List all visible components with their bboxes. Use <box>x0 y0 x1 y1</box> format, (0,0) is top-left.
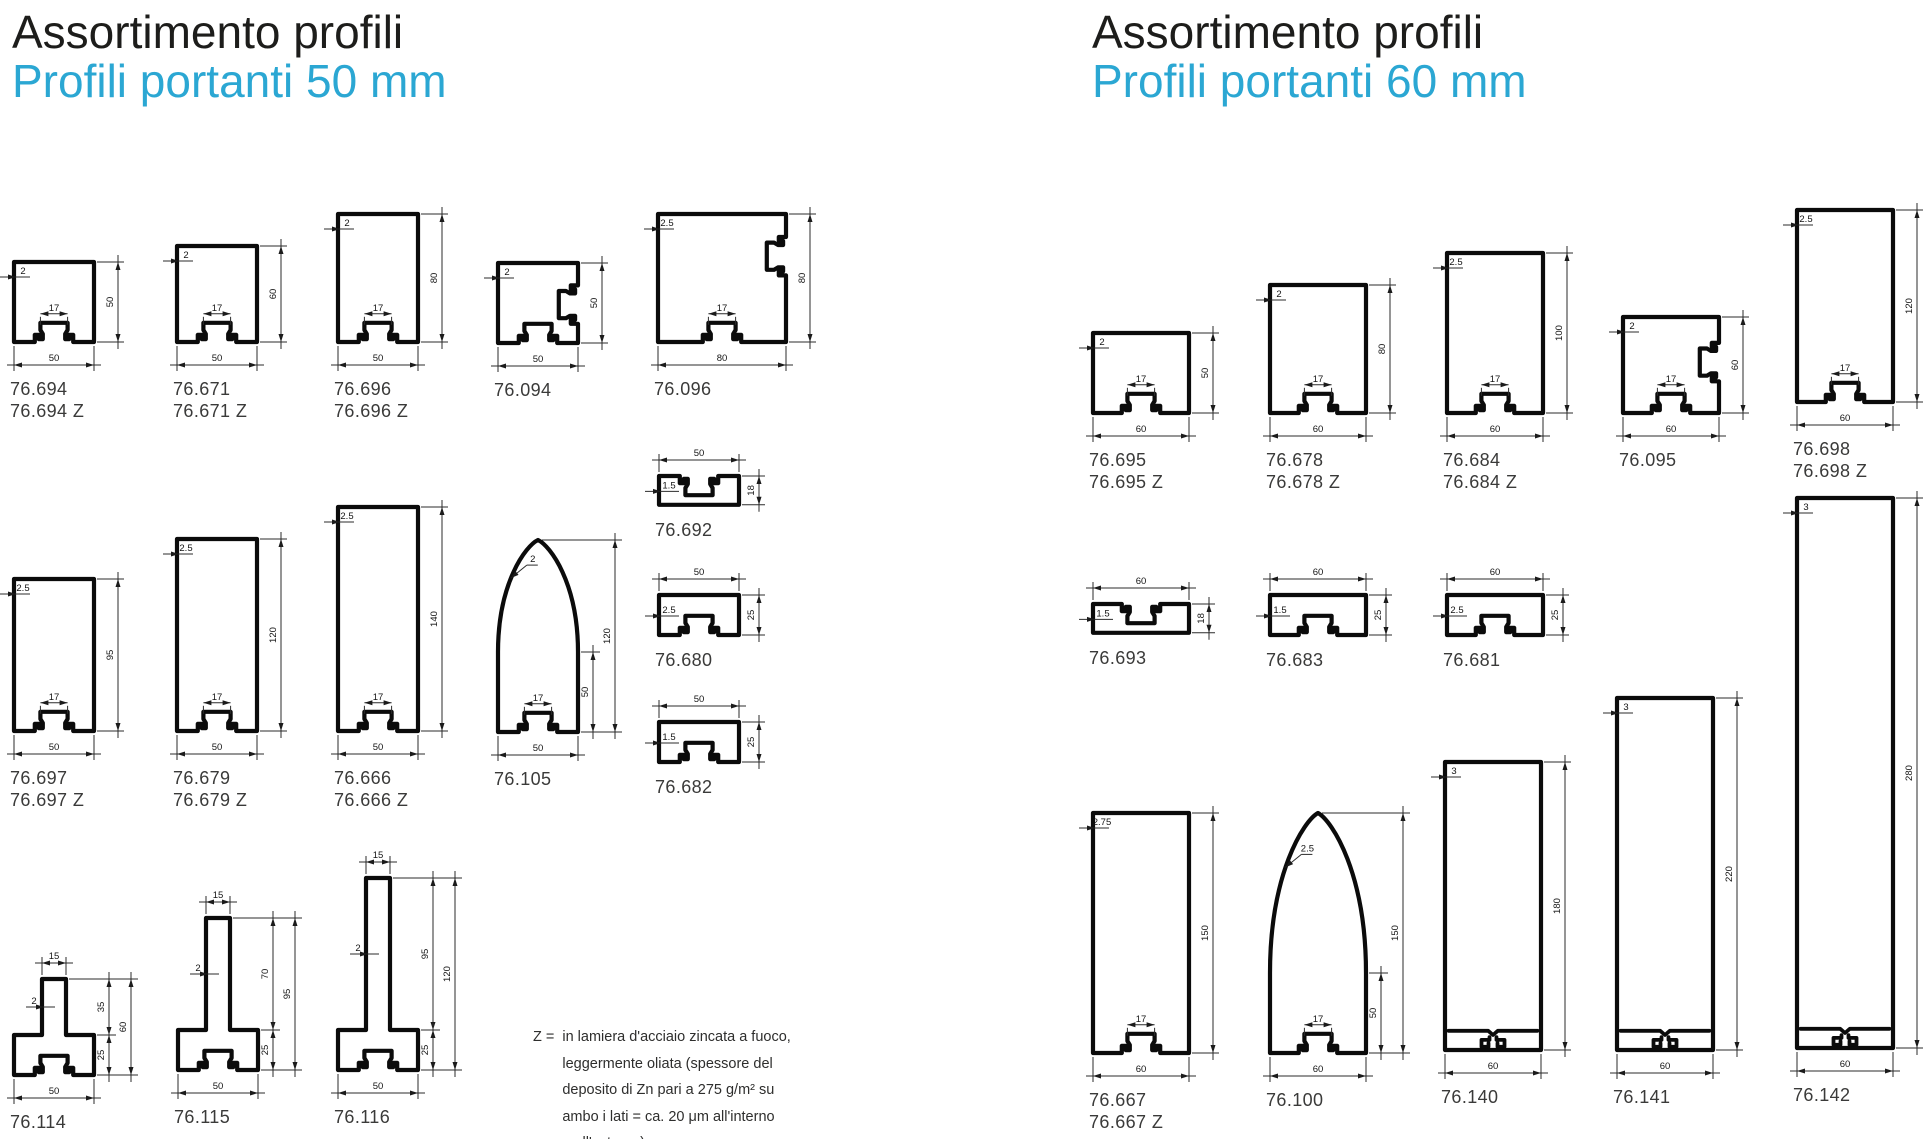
profile-number: 76.696 <box>334 378 408 400</box>
svg-text:25: 25 <box>746 737 757 748</box>
svg-text:2.75: 2.75 <box>1093 817 1112 828</box>
svg-text:150: 150 <box>1390 925 1401 941</box>
profile-drawing: 6017602 <box>1603 305 1757 451</box>
profile-number: 76.666 Z <box>334 789 408 811</box>
svg-text:50: 50 <box>694 694 705 705</box>
profile-number: 76.142 <box>1793 1084 1850 1106</box>
svg-text:50: 50 <box>373 742 384 753</box>
footnote-line: deposito di Zn pari a 275 g/m² su <box>562 1077 790 1104</box>
profile-76.679: 50171202.576.67976.679 Z <box>157 527 295 819</box>
profile-drawing: 6017802 <box>1250 273 1404 451</box>
profile-number-label: 76.69476.694 Z <box>10 378 84 422</box>
profile-number: 76.692 <box>655 519 712 541</box>
profile-number-label: 76.100 <box>1266 1089 1323 1111</box>
profile-drawing: 8017802.5 <box>638 202 824 380</box>
svg-text:17: 17 <box>373 303 384 314</box>
profile-number: 76.096 <box>654 378 711 400</box>
right-section-title: Assortimento profili <box>1092 8 1527 57</box>
profile-76.697: 5017952.576.69776.697 Z <box>0 567 132 819</box>
svg-text:50: 50 <box>49 742 60 753</box>
svg-text:60: 60 <box>1840 413 1851 424</box>
svg-text:2: 2 <box>355 943 360 954</box>
profile-drawing: 5017602 <box>157 234 295 380</box>
profile-drawing: 50153525602 <box>0 945 152 1113</box>
profile-drawing: 50157025952 <box>158 884 316 1108</box>
svg-text:80: 80 <box>717 353 728 364</box>
profile-number: 76.671 Z <box>173 400 247 422</box>
page-canvas: Assortimento profili Profili portanti 50… <box>0 0 1930 1139</box>
svg-text:50: 50 <box>533 354 544 365</box>
profile-76.105: 501750120276.105 <box>478 528 636 820</box>
profile-76.116: 50159525120276.116 <box>318 844 476 1139</box>
svg-text:60: 60 <box>1488 1061 1499 1072</box>
profile-76.692: 50181.576.692 <box>639 442 777 567</box>
profile-number-label: 76.094 <box>494 379 551 401</box>
profile-76.680: 50252.576.680 <box>639 561 777 697</box>
svg-text:180: 180 <box>1552 898 1563 914</box>
profile-number-label: 76.69876.698 Z <box>1793 438 1867 482</box>
left-section-title: Assortimento profili <box>12 8 447 57</box>
svg-text:60: 60 <box>1490 424 1501 435</box>
svg-text:50: 50 <box>589 298 600 309</box>
svg-text:2.5: 2.5 <box>1449 257 1462 268</box>
right-section-subtitle: Profili portanti 60 mm <box>1092 57 1527 106</box>
profile-76.115: 5015702595276.115 <box>158 884 316 1139</box>
svg-text:15: 15 <box>49 951 60 962</box>
svg-text:1.5: 1.5 <box>662 481 675 492</box>
profile-number-label: 76.693 <box>1089 647 1146 669</box>
profile-number-label: 76.681 <box>1443 649 1500 671</box>
profile-drawing: 6017502 <box>1073 321 1227 451</box>
profile-drawing: 60171002.5 <box>1427 241 1581 451</box>
svg-text:15: 15 <box>373 850 384 861</box>
svg-text:17: 17 <box>717 303 728 314</box>
svg-text:60: 60 <box>1313 1064 1324 1075</box>
svg-text:50: 50 <box>1368 1008 1379 1019</box>
profile-76.667: 60171502.7576.66776.667 Z <box>1073 801 1227 1139</box>
svg-text:60: 60 <box>1840 1059 1851 1070</box>
svg-text:25: 25 <box>1550 610 1561 621</box>
svg-text:60: 60 <box>1490 567 1501 578</box>
svg-text:60: 60 <box>1136 1064 1147 1075</box>
svg-text:50: 50 <box>373 353 384 364</box>
svg-text:280: 280 <box>1904 765 1915 781</box>
svg-text:220: 220 <box>1724 866 1735 882</box>
svg-text:60: 60 <box>1666 424 1677 435</box>
svg-text:70: 70 <box>260 969 271 980</box>
svg-text:50: 50 <box>105 297 116 308</box>
profile-76.141: 60220376.141 <box>1597 686 1751 1138</box>
profile-number: 76.684 <box>1443 449 1517 471</box>
profile-76.696: 501780276.69676.696 Z <box>318 202 456 430</box>
svg-text:60: 60 <box>118 1022 129 1033</box>
profile-number: 76.140 <box>1441 1086 1498 1108</box>
profile-76.094: 5050276.094 <box>478 251 616 431</box>
svg-text:50: 50 <box>694 567 705 578</box>
svg-text:17: 17 <box>212 692 223 703</box>
profile-number: 76.679 <box>173 767 247 789</box>
profile-number: 76.141 <box>1613 1086 1670 1108</box>
profile-drawing: 50252.5 <box>639 561 777 647</box>
svg-text:140: 140 <box>429 611 440 627</box>
svg-text:120: 120 <box>442 966 453 982</box>
right-section-header: Assortimento profili Profili portanti 60… <box>1092 8 1527 106</box>
profile-number-label: 76.141 <box>1613 1086 1670 1108</box>
profile-number: 76.095 <box>1619 449 1676 471</box>
profile-number: 76.697 Z <box>10 789 84 811</box>
svg-text:2.5: 2.5 <box>1301 843 1314 854</box>
svg-text:2: 2 <box>195 963 200 974</box>
profile-drawing: 60171202.5 <box>1777 198 1930 440</box>
profile-76.683: 60251.576.683 <box>1250 561 1404 697</box>
svg-text:18: 18 <box>1196 613 1207 624</box>
svg-text:50: 50 <box>213 1081 224 1092</box>
svg-text:2.5: 2.5 <box>1799 214 1812 225</box>
profile-drawing: 60171502.75 <box>1073 801 1227 1091</box>
svg-text:50: 50 <box>49 1086 60 1097</box>
profile-number: 76.696 Z <box>334 400 408 422</box>
profile-drawing: 50502 <box>478 251 616 381</box>
svg-text:2.5: 2.5 <box>660 218 673 229</box>
svg-text:50: 50 <box>373 1081 384 1092</box>
profile-drawing: 60181.5 <box>1073 570 1227 645</box>
svg-text:60: 60 <box>1313 424 1324 435</box>
profile-76.684: 60171002.576.68476.684 Z <box>1427 241 1581 501</box>
profile-number: 76.684 Z <box>1443 471 1517 493</box>
profile-number-label: 76.680 <box>655 649 712 671</box>
svg-text:2.5: 2.5 <box>340 511 353 522</box>
profile-76.681: 60252.576.681 <box>1427 561 1581 697</box>
svg-text:60: 60 <box>1730 360 1741 371</box>
left-section-subtitle: Profili portanti 50 mm <box>12 57 447 106</box>
profile-drawing: 6017501502.5 <box>1250 801 1424 1091</box>
footnote-line: leggermente oliata (spessore del <box>562 1051 790 1078</box>
svg-text:17: 17 <box>212 303 223 314</box>
svg-text:80: 80 <box>797 273 808 284</box>
profile-76.096: 8017802.576.096 <box>638 202 824 430</box>
profile-number-label: 76.114 <box>10 1111 66 1133</box>
profile-number-label: 76.682 <box>655 776 712 798</box>
svg-text:60: 60 <box>1313 567 1324 578</box>
profile-76.693: 60181.576.693 <box>1073 570 1227 695</box>
profile-drawing: 601803 <box>1425 750 1579 1088</box>
svg-text:25: 25 <box>746 610 757 621</box>
profile-number-label: 76.69676.696 Z <box>334 378 408 422</box>
profile-drawing: 5017952.5 <box>0 567 132 769</box>
svg-text:17: 17 <box>1840 363 1851 374</box>
profile-number-label: 76.66776.667 Z <box>1089 1089 1163 1133</box>
profile-76.678: 601780276.67876.678 Z <box>1250 273 1404 501</box>
svg-text:95: 95 <box>282 989 293 1000</box>
profile-number-label: 76.69776.697 Z <box>10 767 84 811</box>
profile-number: 76.683 <box>1266 649 1323 671</box>
profile-drawing: 602203 <box>1597 686 1751 1088</box>
svg-text:50: 50 <box>580 687 591 698</box>
profile-number-label: 76.683 <box>1266 649 1323 671</box>
profile-number-label: 76.692 <box>655 519 712 541</box>
svg-text:2: 2 <box>1276 289 1281 300</box>
profile-number: 76.114 <box>10 1111 66 1133</box>
footnote: Z = in lamiera d'acciaio zincata a fuoco… <box>533 1024 791 1139</box>
svg-text:17: 17 <box>1313 1014 1324 1025</box>
profile-number: 76.693 <box>1089 647 1146 669</box>
svg-text:95: 95 <box>420 949 431 960</box>
profile-drawing: 60251.5 <box>1250 561 1404 647</box>
svg-text:18: 18 <box>746 485 757 496</box>
svg-text:50: 50 <box>533 743 544 754</box>
footnote-text: in lamiera d'acciaio zincata a fuoco, le… <box>562 1024 790 1139</box>
profile-number: 76.667 Z <box>1089 1111 1163 1133</box>
svg-text:3: 3 <box>1803 502 1808 513</box>
svg-text:50: 50 <box>212 742 223 753</box>
svg-text:3: 3 <box>1451 766 1456 777</box>
svg-text:25: 25 <box>1373 610 1384 621</box>
svg-text:17: 17 <box>1136 1014 1147 1025</box>
profile-number-label: 76.105 <box>494 768 551 790</box>
svg-text:2: 2 <box>344 218 349 229</box>
profile-number: 76.105 <box>494 768 551 790</box>
svg-text:17: 17 <box>1490 374 1501 385</box>
svg-text:17: 17 <box>1313 374 1324 385</box>
svg-text:120: 120 <box>602 628 613 644</box>
profile-76.666: 50171402.576.66676.666 Z <box>318 495 456 819</box>
svg-text:1.5: 1.5 <box>662 732 675 743</box>
svg-text:60: 60 <box>1660 1061 1671 1072</box>
profile-number-label: 76.68476.684 Z <box>1443 449 1517 493</box>
profile-number-label: 76.096 <box>654 378 711 400</box>
svg-text:50: 50 <box>1200 368 1211 379</box>
svg-text:100: 100 <box>1554 325 1565 341</box>
svg-text:1.5: 1.5 <box>1273 605 1286 616</box>
profile-76.698: 60171202.576.69876.698 Z <box>1777 198 1930 490</box>
profile-drawing: 5017802 <box>318 202 456 380</box>
svg-text:80: 80 <box>1377 344 1388 355</box>
svg-text:120: 120 <box>1904 298 1915 314</box>
svg-text:150: 150 <box>1200 925 1211 941</box>
profile-number: 76.698 <box>1793 438 1867 460</box>
profile-number-label: 76.116 <box>334 1106 390 1128</box>
svg-text:2.5: 2.5 <box>1450 605 1463 616</box>
profile-number: 76.698 Z <box>1793 460 1867 482</box>
profile-76.142: 60280376.142 <box>1777 486 1930 1136</box>
profile-drawing: 50171202.5 <box>157 527 295 769</box>
profile-number: 76.697 <box>10 767 84 789</box>
svg-text:17: 17 <box>533 693 544 704</box>
svg-text:15: 15 <box>213 890 224 901</box>
svg-text:2.5: 2.5 <box>662 605 675 616</box>
profile-drawing: 5017501202 <box>478 528 636 770</box>
svg-text:80: 80 <box>429 273 440 284</box>
profile-number: 76.100 <box>1266 1089 1323 1111</box>
svg-text:17: 17 <box>1666 374 1677 385</box>
svg-text:2.5: 2.5 <box>179 543 192 554</box>
svg-text:2: 2 <box>183 250 188 261</box>
profile-76.671: 501760276.67176.671 Z <box>157 234 295 430</box>
svg-text:50: 50 <box>212 353 223 364</box>
profile-drawing: 501595251202 <box>318 844 476 1108</box>
profile-drawing: 50171402.5 <box>318 495 456 769</box>
svg-text:2: 2 <box>530 554 535 565</box>
profile-number: 76.671 <box>173 378 247 400</box>
profile-number: 76.681 <box>1443 649 1500 671</box>
svg-text:3: 3 <box>1623 702 1628 713</box>
svg-text:2: 2 <box>504 267 509 278</box>
left-section-header: Assortimento profili Profili portanti 50… <box>12 8 447 106</box>
svg-text:50: 50 <box>694 448 705 459</box>
svg-text:1.5: 1.5 <box>1096 609 1109 620</box>
profile-76.114: 5015352560276.114 <box>0 945 152 1139</box>
svg-text:95: 95 <box>105 650 116 661</box>
profile-number-label: 76.67976.679 Z <box>173 767 247 811</box>
profile-number: 76.667 <box>1089 1089 1163 1111</box>
profile-number: 76.695 Z <box>1089 471 1163 493</box>
svg-text:2.5: 2.5 <box>16 583 29 594</box>
profile-number-label: 76.142 <box>1793 1084 1850 1106</box>
svg-text:17: 17 <box>49 303 60 314</box>
svg-text:25: 25 <box>420 1045 431 1056</box>
footnote-line: in lamiera d'acciaio zincata a fuoco, <box>562 1024 790 1051</box>
svg-text:2: 2 <box>20 266 25 277</box>
profile-76.095: 601760276.095 <box>1603 305 1757 501</box>
footnote-line: ambo i lati = ca. 20 μm all'interno <box>562 1104 790 1131</box>
profile-number: 76.694 Z <box>10 400 84 422</box>
profile-76.140: 60180376.140 <box>1425 750 1579 1138</box>
svg-text:17: 17 <box>1136 374 1147 385</box>
profile-number: 76.695 <box>1089 449 1163 471</box>
svg-text:25: 25 <box>96 1050 107 1061</box>
svg-text:50: 50 <box>49 353 60 364</box>
svg-text:2: 2 <box>31 996 36 1007</box>
profile-number: 76.666 <box>334 767 408 789</box>
svg-text:2: 2 <box>1099 337 1104 348</box>
profile-drawing: 602803 <box>1777 486 1930 1086</box>
profile-number: 76.115 <box>174 1106 230 1128</box>
svg-text:2: 2 <box>1629 321 1634 332</box>
profile-drawing: 5017502 <box>0 250 132 380</box>
profile-number-label: 76.095 <box>1619 449 1676 471</box>
profile-number-label: 76.67176.671 Z <box>173 378 247 422</box>
svg-text:17: 17 <box>49 692 60 703</box>
profile-number: 76.680 <box>655 649 712 671</box>
svg-text:60: 60 <box>268 289 279 300</box>
svg-text:17: 17 <box>373 692 384 703</box>
profile-drawing: 50251.5 <box>639 688 777 774</box>
profile-drawing: 60252.5 <box>1427 561 1581 647</box>
profile-number-label: 76.115 <box>174 1106 230 1128</box>
profile-76.682: 50251.576.682 <box>639 688 777 824</box>
profile-number: 76.678 <box>1266 449 1340 471</box>
profile-number-label: 76.67876.678 Z <box>1266 449 1340 493</box>
profile-drawing: 50181.5 <box>639 442 777 517</box>
profile-number-label: 76.69576.695 Z <box>1089 449 1163 493</box>
svg-text:60: 60 <box>1136 424 1147 435</box>
footnote-prefix: Z = <box>533 1024 554 1139</box>
profile-number: 76.094 <box>494 379 551 401</box>
profile-number: 76.682 <box>655 776 712 798</box>
svg-text:25: 25 <box>260 1045 271 1056</box>
footnote-line: e all'esterno) <box>562 1130 790 1139</box>
profile-number: 76.694 <box>10 378 84 400</box>
svg-text:35: 35 <box>96 1002 107 1013</box>
svg-text:60: 60 <box>1136 576 1147 587</box>
profile-76.694: 501750276.69476.694 Z <box>0 250 132 430</box>
profile-number-label: 76.140 <box>1441 1086 1498 1108</box>
profile-number-label: 76.66676.666 Z <box>334 767 408 811</box>
profile-76.100: 6017501502.576.100 <box>1250 801 1424 1139</box>
svg-text:120: 120 <box>268 627 279 643</box>
profile-number: 76.678 Z <box>1266 471 1340 493</box>
profile-76.695: 601750276.69576.695 Z <box>1073 321 1227 501</box>
profile-number: 76.679 Z <box>173 789 247 811</box>
profile-number: 76.116 <box>334 1106 390 1128</box>
